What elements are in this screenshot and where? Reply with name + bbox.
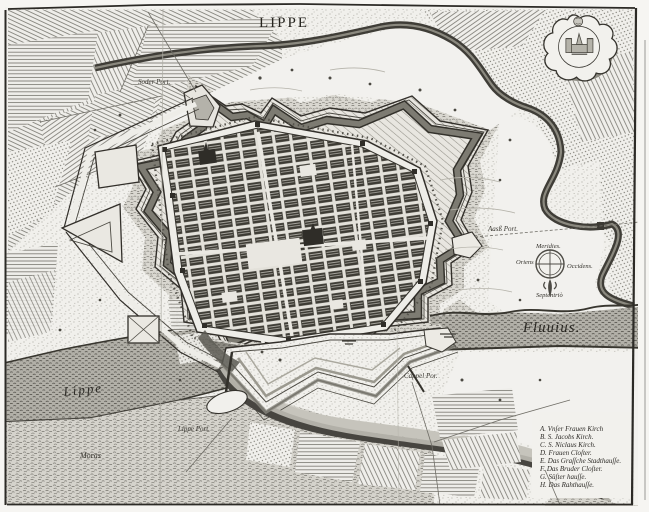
svg-text:E. Das Graſſche Stadthauſſe.: E. Das Graſſche Stadthauſſe. [539, 457, 621, 465]
svg-text:D. Frauen Cloſter.: D. Frauen Cloſter. [539, 449, 592, 457]
svg-text:Meridies.: Meridies. [535, 243, 561, 250]
svg-text:Cappel Por.: Cappel Por. [404, 372, 438, 380]
svg-text:Aasß Port.: Aasß Port. [487, 225, 518, 233]
svg-text:Septentriò: Septentriò [536, 292, 563, 299]
svg-text:F. Das Bruder Cloſter.: F. Das Bruder Cloſter. [539, 465, 603, 473]
svg-text:B. S. Jacobs Kirch.: B. S. Jacobs Kirch. [540, 433, 594, 441]
svg-text:A. Vnſer Frauen Kirch: A. Vnſer Frauen Kirch [539, 425, 604, 433]
svg-text:LIPPE: LIPPE [259, 15, 309, 31]
svg-text:Moras: Moras [79, 451, 101, 460]
svg-text:Oriens: Oriens [516, 259, 534, 266]
svg-text:H. Das Rahthauſſe.: H. Das Rahthauſſe. [539, 481, 594, 489]
svg-text:Occidens.: Occidens. [567, 263, 593, 270]
svg-text:C. S. Niclaus Kirch.: C. S. Niclaus Kirch. [540, 441, 596, 449]
svg-text:Fluuius.: Fluuius. [522, 320, 581, 336]
svg-text:Lippe Port.: Lippe Port. [177, 425, 210, 433]
svg-text:Soder Port.: Soder Port. [138, 78, 171, 86]
